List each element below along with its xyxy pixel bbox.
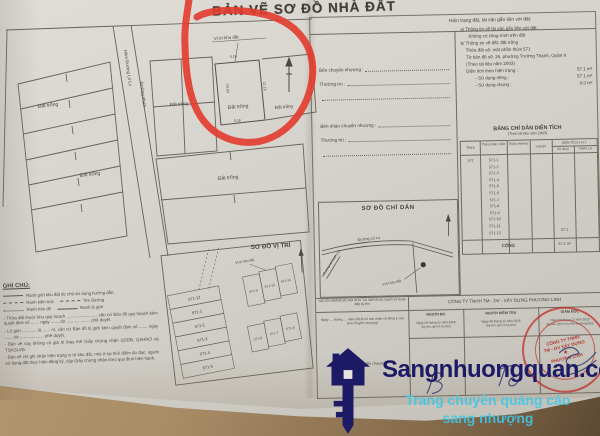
legend-solid-line [57,308,77,310]
map-borders [3,19,312,207]
house-key-logo-icon [326,348,370,434]
buyer-row: Bên nhận chuyển nhượng : [320,121,450,129]
main-map: Hẻm Đường Lò Lu Đường nhựa Đất trống Đất… [0,8,318,270]
right-bottom-parcels: 571-6 571-7 571-8 [247,313,303,352]
sign-left-header: NGƯỜI NHẬN/CHỦ SỞ HỮU TÀI SẢN (hoặc ngườ… [318,297,406,307]
road-label-a: Hẻm Đường Lò Lu [123,49,133,86]
area-table-grid: Thửa Thửa phân chiết Thửa chỉnh lý Loại … [460,138,600,255]
left-parcel-block [18,62,127,252]
col-split: Thửa phân chiết [480,142,507,147]
fill-row [320,93,450,101]
legend-dotted-line [4,310,24,312]
seller-row: Bên chuyển nhượng : [319,65,449,73]
location-pointer-leader [250,263,266,271]
check-date: Ngày 08 tháng 12 năm 2018 (ký tên, ghi r… [465,319,536,328]
fill-line [347,79,449,86]
parcel-id: 571-10 [264,283,275,289]
company-name: CÔNG TY TNHH TM - DV - XÂY DỰNG PHƯƠNG L… [410,296,599,306]
parcel-id: 571-3 [197,336,209,343]
parcel-id: 571-12 [188,294,202,301]
parcel-label: Đất trống [218,174,239,182]
parcel-label: Đất trống [275,103,294,110]
watermark-tagline-2: sang nhượng [378,410,598,426]
seller-label: Bên chuyển nhượng : [319,67,364,73]
parcel-id: 571-11 [281,278,292,284]
legend-label: Ranh lộ giới [80,304,103,310]
dim-left: 10.93 [225,84,230,93]
split-parcel: 571-12 [482,229,509,236]
guide-roads: Đường Lò Lu Đường Lã Xuân Oai Vị trí khu… [319,214,459,297]
date-sub-line: (ký tên, ghi rõ họ tên) [466,323,537,328]
guide-title: SƠ ĐỒ CHỈ DẪN [319,204,457,213]
parcel-label: Đất trống [228,103,249,111]
parcel-label: Đất trống [38,101,59,109]
parcel-label: Đất trống [170,101,189,107]
notes-section: GHI CHÚ: Ranh giới khu đất do chủ sử dụn… [3,278,160,366]
location-site-pointer: Vị trí khu đất [235,258,254,265]
legend-solid-line [3,295,23,297]
land-info-block: a/ Thông tin về tài sản gắn liền với đất… [460,24,592,89]
parcel-id: 571-1 [192,308,204,315]
subject-parcel [215,60,265,125]
col-thua: Thửa [461,145,480,150]
fill-row [321,149,451,157]
fill-line [365,65,449,72]
guide-site-dot [421,262,426,267]
col-check-header: NGƯỜI KIỂM TRA [463,310,538,316]
road-label-b: Đường nhựa [139,81,148,107]
fill-line [323,149,451,157]
seller-residence-row: Thường trú : [319,79,449,87]
legend-label: Ranh kiến trúc [26,299,54,306]
mid-parcel-block [150,57,217,156]
parcel-label: Đất trống [80,170,101,178]
buyer-label: Bên nhận chuyển nhượng : [320,123,376,129]
location-diagram: SƠ ĐỒ VỊ TRÍ Vị trí khu đất 571-12 571-1… [152,236,317,386]
bottom-parcel-block [156,144,309,244]
split-parcel-list: 571-1 571-2 571-3 571-4 571-5 571-6 571-… [480,157,509,237]
left-parcel-column: 571-12 571-1 571-2 571-3 571-4 571-5 [167,286,234,378]
parcel-id: 571-4 [200,350,212,357]
watermark: Sangnhuongquan.com Trang chuyên quảng cá… [318,346,600,436]
col-adjust: Thửa chỉnh lý [507,141,530,145]
use-area-value: 57.1 [554,228,576,233]
col-measure-header: NGƯỜI ĐO [408,312,463,318]
watermark-brand: Sangnhuongquan.com [382,356,600,384]
photo-stage: BẢN VẼ SƠ ĐỒ NHÀ ĐẤT Hẻm Đường Lò Lu Đườ… [0,0,600,436]
fill-line [322,93,450,101]
col-lg: Chiếm LG [574,147,597,151]
dim-right: 11.19 [262,82,267,91]
right-panel: Hiện trạng đất, tài sản gắn liền với đất… [309,11,600,399]
guide-site-label: Vị trí khu đất [382,279,402,287]
guide-road-side: Đường Lã Xuân Oai [322,249,341,275]
parcel-id: 571-5 [202,363,214,370]
pointer-leader [235,43,238,62]
location-title: SƠ ĐỒ VỊ TRÍ [251,241,291,251]
fill-line [348,135,450,142]
residence-label: Thường trú : [321,137,347,143]
total-label: CỘNG [463,242,554,249]
right-top-parcels: 571-9 571-10 571-11 [242,263,299,306]
col-type: Loại gò [530,144,552,148]
guide-north-arrow-icon [446,215,450,236]
legend-dashed-line [3,302,23,304]
legend-dashdot-line [60,300,80,302]
shared-value: 0,0 m² [580,80,593,87]
info-shared-row: - Sử dụng chung : 0,0 m² [461,80,592,90]
parcel-id: 571-9 [249,288,258,294]
sign-left-date: Ngày .... tháng .... năm 2018 (có xác nh… [320,316,404,326]
location-road-dashed [197,248,221,290]
guide-diagram: SƠ ĐỒ CHỈ DẪN Đường Lò Lu Đường Lã Xuân … [318,199,460,298]
residence-label: Thường trú : [319,81,345,87]
parent-parcel: 571 [461,158,480,163]
buyer-residence-row: Thường trú : [321,135,451,143]
parcel-id: 571-7 [270,331,279,337]
fill-line [378,121,450,128]
total-value: 57.1 m² [554,242,576,247]
north-arrow-icon [286,58,292,92]
col-use: Sử dụng [552,148,574,152]
legend-label: Ranh bản đồ [26,306,51,313]
parcel-id: 571-6 [253,336,262,342]
watermark-tagline-1: Trang chuyên quảng cáo [378,392,598,408]
parcel-id: 571-2 [194,322,206,329]
guide-site-leader [404,268,420,279]
dim-bottom: 5.16 [234,118,241,123]
legend-label: Tim đường [83,297,104,303]
area-table: BẢNG CHỈ DẪN DIỆN TÍCH (Theo tài liệu nă… [459,124,598,257]
parcel-id: 571-8 [286,326,295,332]
shared-label: - Sử dụng chung : [475,82,511,90]
measure-date: Ngày 08 tháng 12 năm 2018 (ký tên, ghi r… [409,321,462,330]
